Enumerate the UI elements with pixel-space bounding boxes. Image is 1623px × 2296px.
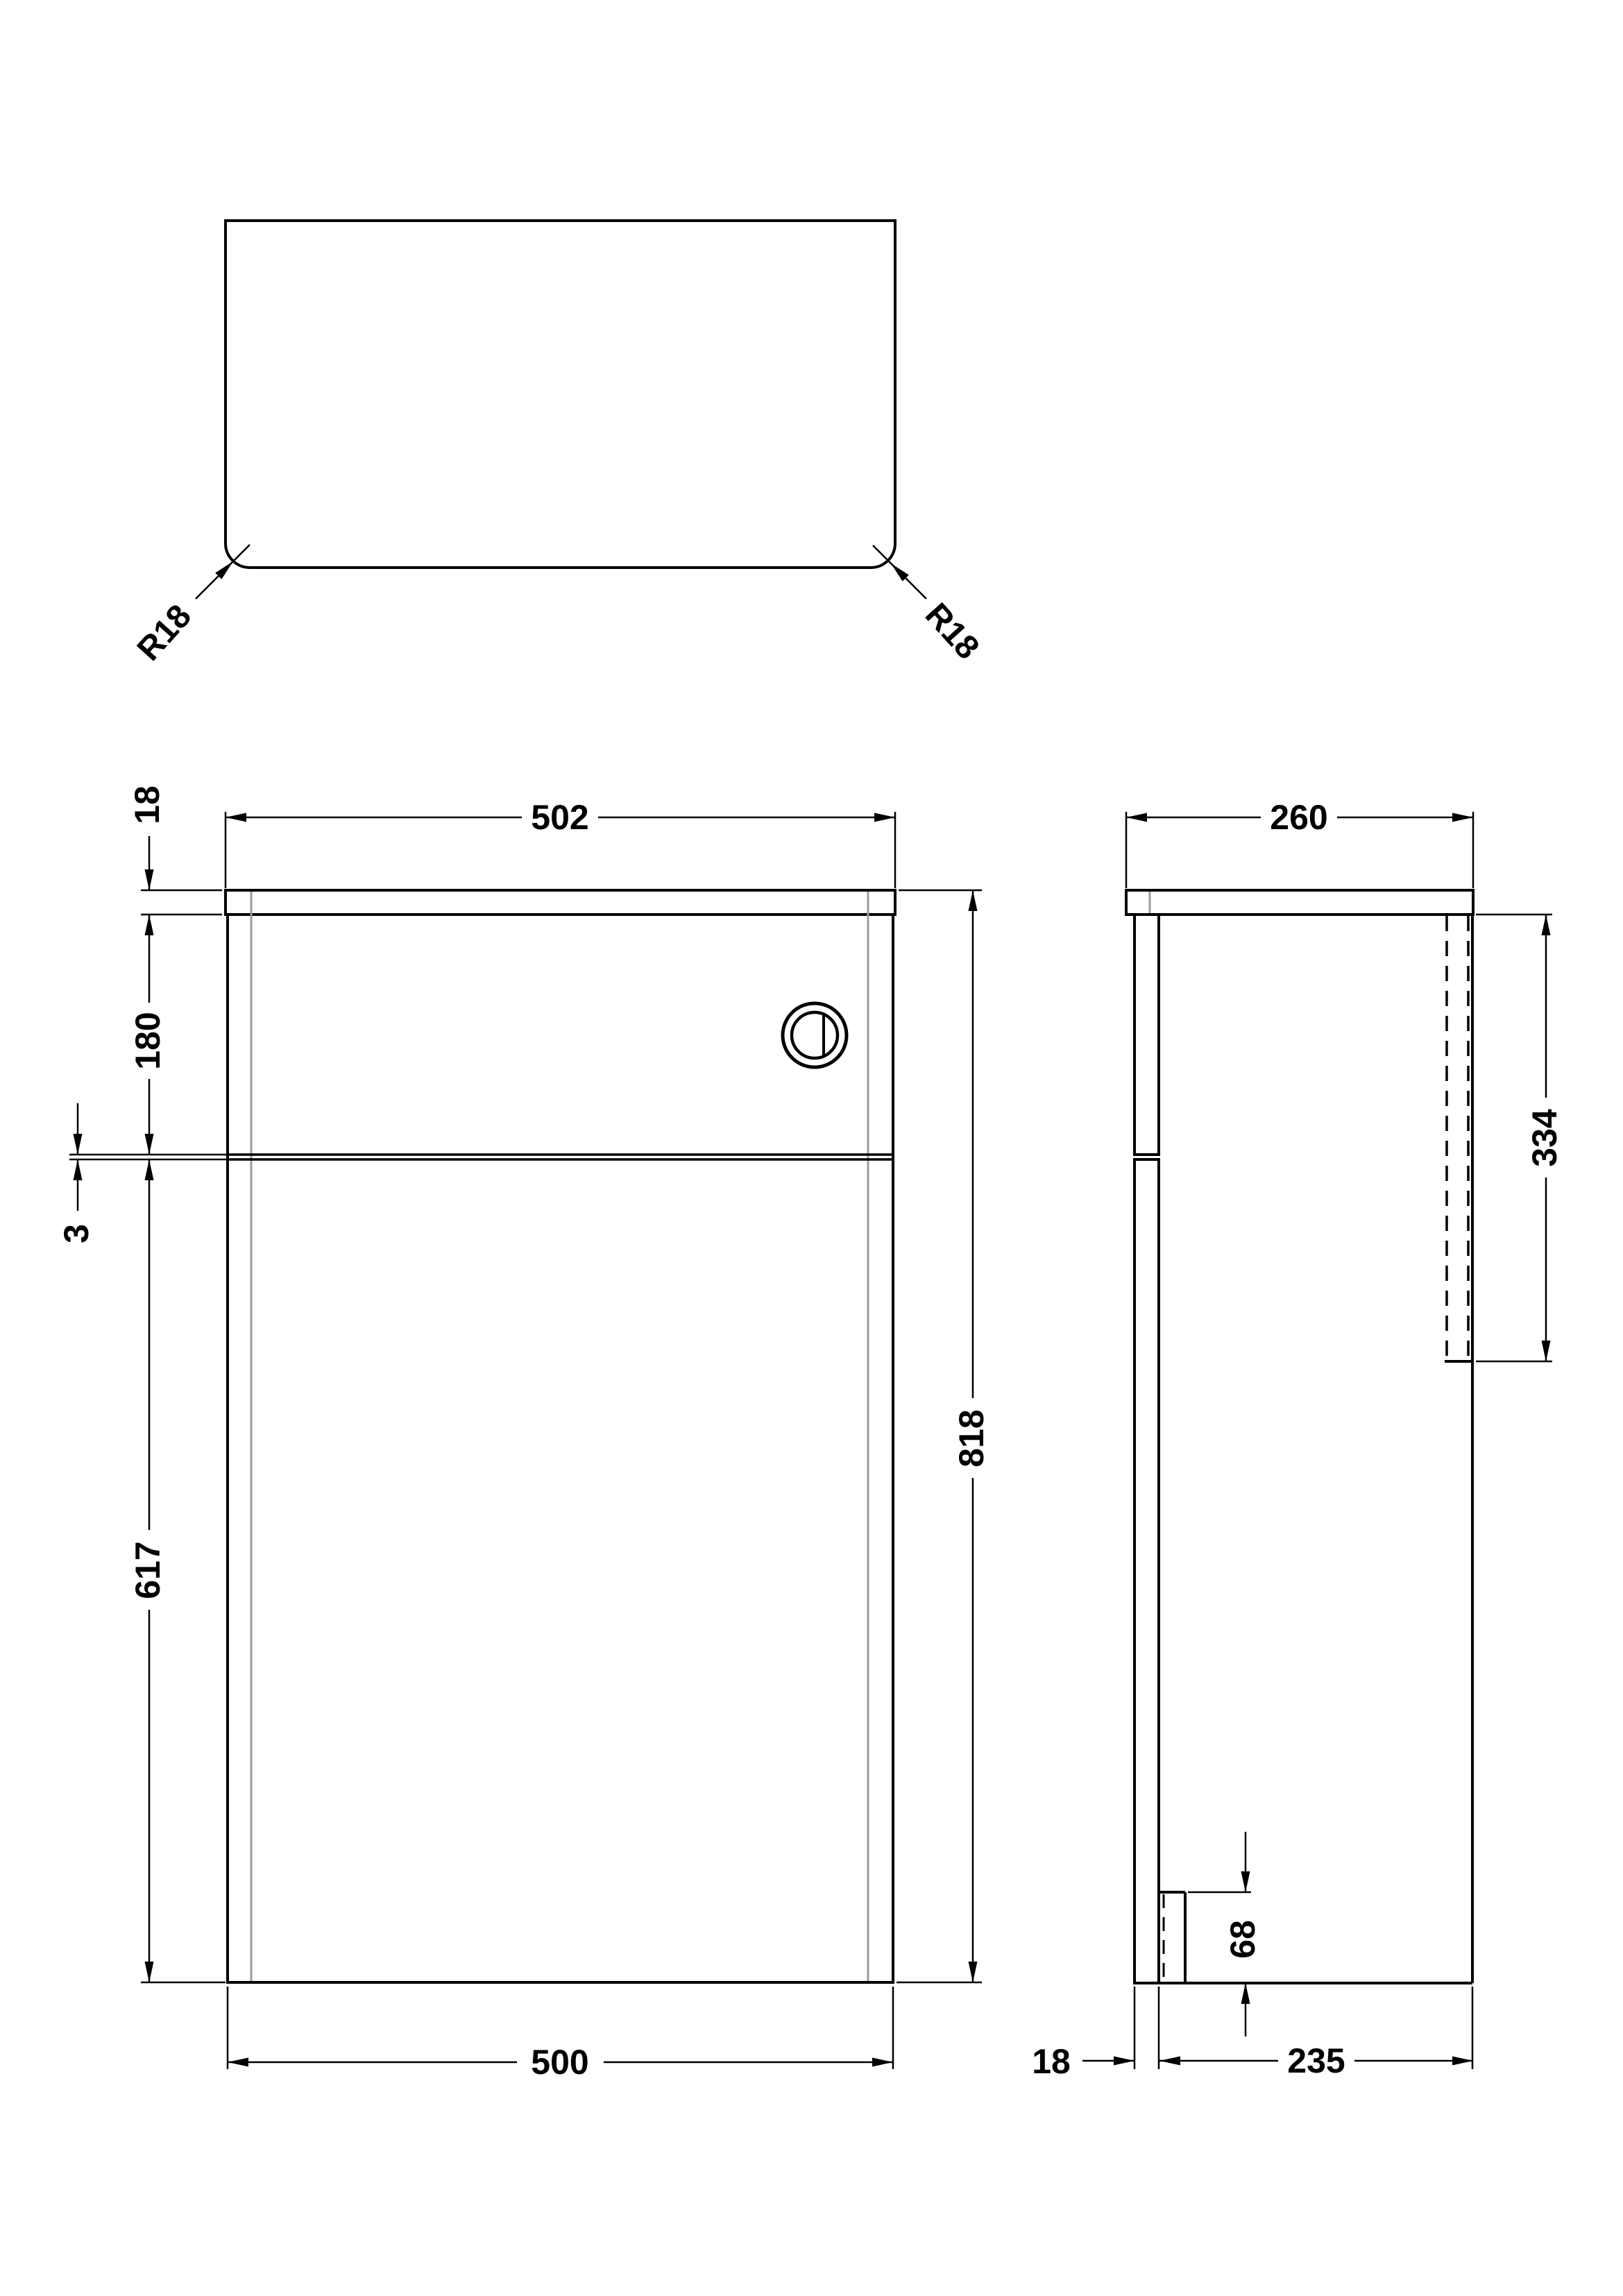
dim-label-overall-depth: 260 [1270,798,1327,837]
dim-back-panel-height: 334 [1476,915,1564,1361]
dim-label-overall-height: 818 [952,1409,991,1467]
radius-label-left: R18 [130,598,198,668]
dim-front-panel-thickness: 18 [1032,1987,1159,2081]
dim-label-door-height: 617 [128,1541,167,1599]
side-dimensions: 260 334 68 18 [1032,798,1564,2081]
front-cabinet-body [228,915,893,1982]
drawing-page: R18 R18 [0,0,1623,2296]
radius-callout-left: R18 [130,545,250,667]
side-front-panel-upper [1135,915,1159,1155]
radius-callout-right: R18 [873,545,986,666]
front-worktop [226,890,895,915]
side-worktop [1126,890,1473,915]
dim-label-overall-width: 502 [531,798,588,837]
dim-label-cabinet-width: 500 [531,2043,588,2082]
dim-cabinet-width: 500 [228,1987,893,2082]
side-view [1126,890,1473,1983]
front-view [69,890,895,1982]
dim-worktop-thickness: 18 [128,785,222,915]
dim-overall-height: 818 [897,890,991,1982]
side-front-panel-lower [1135,1159,1159,1983]
dim-overall-depth: 260 [1126,798,1473,888]
technical-drawing-canvas: R18 R18 [0,0,1623,2296]
radius-label-right: R18 [918,597,986,667]
dim-label-panel-gap: 3 [57,1224,96,1243]
dim-plinth-height: 68 [1188,1832,1262,2036]
worktop-plan-outline [226,221,895,568]
top-view: R18 R18 [130,221,986,667]
dim-overall-width: 502 [226,798,895,888]
dim-label-back-panel-height: 334 [1525,1109,1564,1167]
dim-label-front-panel-thickness: 18 [1032,2042,1071,2081]
dim-door-height: 617 [128,1159,226,1982]
dim-label-cabinet-depth: 235 [1287,2041,1345,2080]
dim-label-plinth-height: 68 [1223,1920,1262,1959]
dim-cistern-height: 180 [128,915,167,1155]
dim-cabinet-depth: 235 [1159,1987,1473,2080]
dim-label-worktop-thickness: 18 [128,785,167,824]
dim-label-cistern-height: 180 [128,1012,167,1069]
dim-panel-gap: 3 [57,1103,96,1243]
